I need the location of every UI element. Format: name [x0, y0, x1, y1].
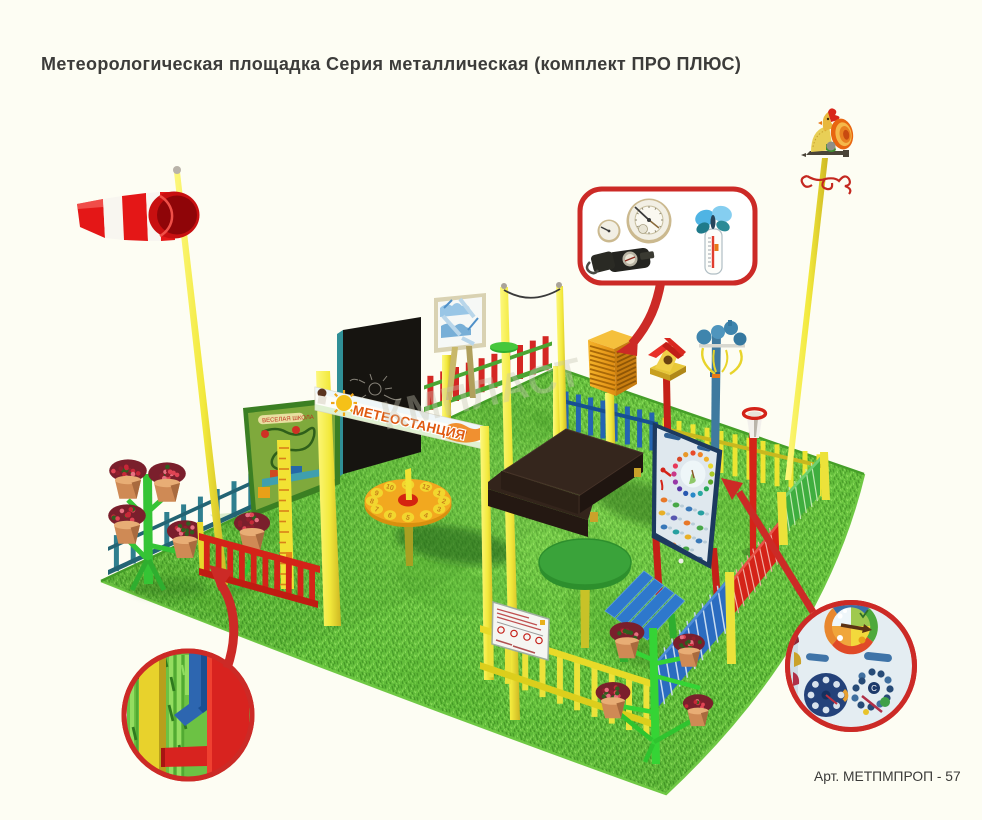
- svg-text:С: С: [871, 684, 877, 693]
- svg-text:Арт. МЕТПМПРОП - 57: Арт. МЕТПМПРОП - 57: [814, 769, 961, 784]
- svg-text:Метеорологическая площадка Сер: Метеорологическая площадка Серия металли…: [41, 54, 741, 74]
